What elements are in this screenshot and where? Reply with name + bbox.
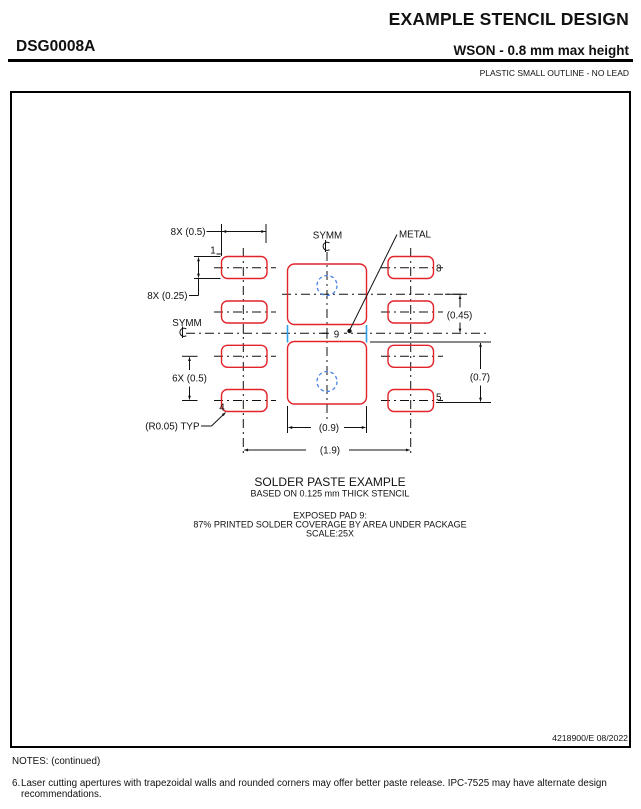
datasheet-page: EXAMPLE STENCIL DESIGN DSG0008A WSON - 0… [0,0,641,809]
dim-pad-width-label: 8X (0.5) [171,227,206,238]
dim-pad-pitch-label: 6X (0.5) [172,374,207,385]
metal-label: METAL [399,230,431,241]
doc-number: 4218900/E 08/2022 [552,733,628,743]
pad9-label: 9 [334,330,339,341]
radius-typ-label: (R0.05) TYP [145,422,200,433]
pin5-label: 5 [436,393,442,404]
symm-left-label: SYMM [172,318,201,329]
note-6-text: Laser cutting apertures with trapezoidal… [12,779,624,800]
caption-scale: SCALE:25X [306,529,354,539]
pin1-label: 1 [210,246,215,257]
metal-leader-dot [347,329,351,333]
dim-19-label: (1.9) [320,446,340,457]
note-6: 6. Laser cutting apertures with trapezoi… [12,779,624,800]
notes-heading: NOTES: (continued) [12,756,100,767]
note-6-number: 6. [12,779,20,790]
symm-top-label: SYMM [313,231,342,242]
caption-subtitle: BASED ON 0.125 mm THICK STENCIL [251,489,410,499]
pin4-label: 4 [219,403,225,414]
pin8-label: 8 [436,264,442,275]
dim-pad-height-label: 8X (0.25) [147,291,187,302]
dim-07-label: (0.7) [470,373,490,384]
dim-09-label: (0.9) [319,423,339,434]
centerline-symbol-top [323,240,329,252]
stencil-drawing: 8X (0.5) 1 8X (0.25) SYMM 6X (0.5) 4 (R0… [0,0,641,809]
dim-045-label: (0.45) [447,311,473,322]
caption-title: SOLDER PASTE EXAMPLE [254,475,405,489]
